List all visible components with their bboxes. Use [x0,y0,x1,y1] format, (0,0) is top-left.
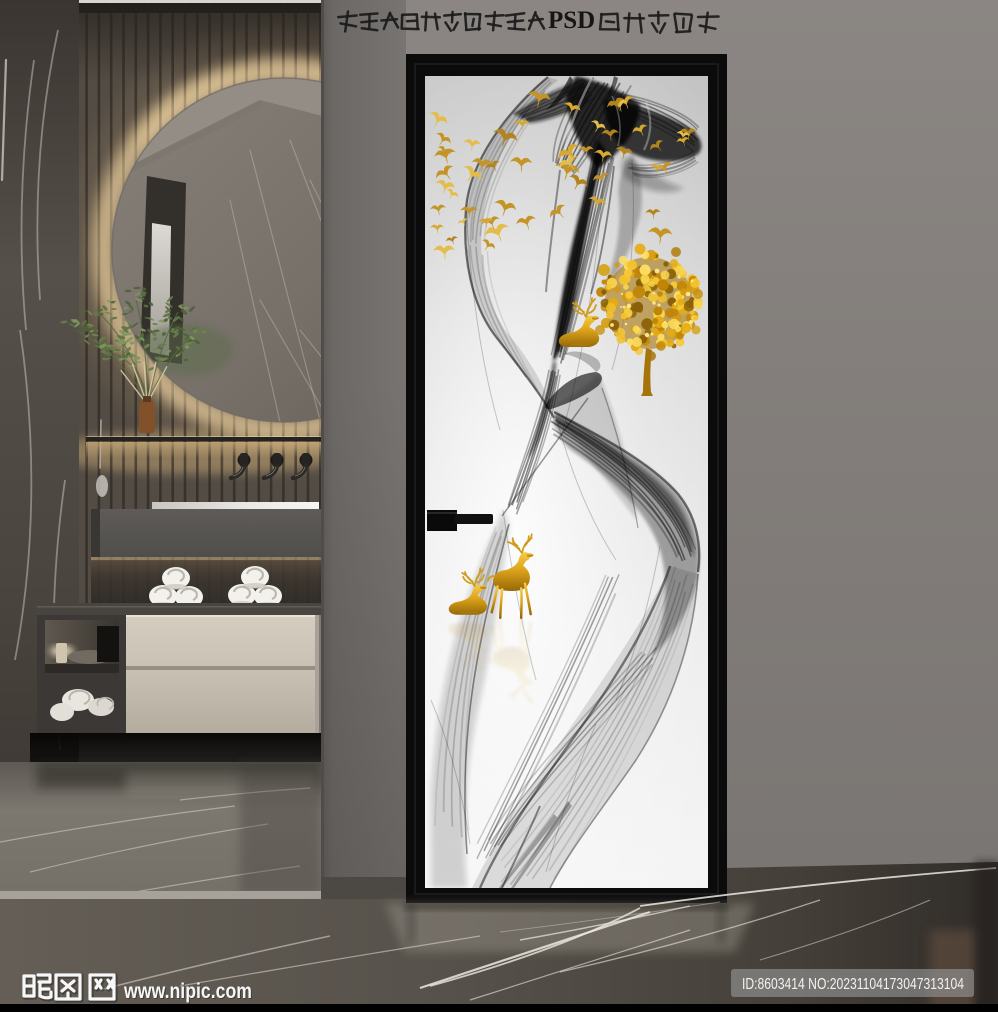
svg-text:www.nipic.com: www.nipic.com [123,980,252,1003]
svg-text:ID:8603414 NO:2023110417304731: ID:8603414 NO:20231104173047313104 [742,976,964,993]
svg-text:PSD: PSD [548,7,595,34]
